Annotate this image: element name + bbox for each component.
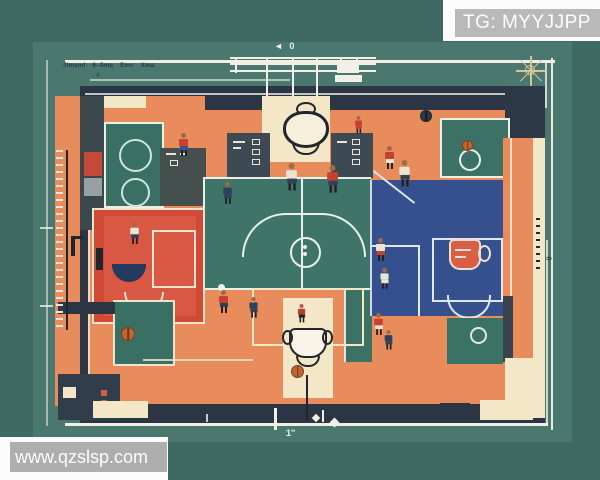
bottom-ruler-line — [65, 423, 548, 426]
player-center-red — [327, 165, 338, 193]
left-column-gray-block — [84, 178, 102, 196]
player-topleft — [179, 133, 188, 156]
player-leg — [401, 180, 403, 187]
player-head — [386, 330, 390, 334]
blue-court-left-line — [370, 180, 372, 316]
panel-left-box-2 — [252, 149, 260, 155]
basket-mug-dash-1 — [455, 249, 471, 251]
player-jersey — [219, 296, 228, 303]
player-leg — [221, 307, 223, 313]
right-ruler-line — [551, 58, 553, 430]
player-jersey — [179, 139, 188, 146]
player-jersey — [385, 152, 394, 159]
player-legs — [132, 238, 138, 244]
player-legs — [401, 180, 408, 187]
top-navy-band — [205, 86, 545, 110]
ball-seam — [425, 111, 427, 121]
panel-right-box-3 — [352, 159, 360, 165]
watermark-bottom-text: www.qzslsp.com — [15, 447, 148, 467]
measure-vtick-1 — [235, 57, 237, 73]
player-leg — [228, 198, 230, 204]
player-leg — [389, 344, 391, 349]
player-leg — [225, 307, 227, 313]
orange-hline — [143, 359, 253, 361]
player-bottom-center — [298, 304, 305, 322]
player-jersey — [130, 228, 139, 235]
player-leg — [302, 318, 304, 323]
red-key — [152, 230, 196, 288]
player-jersey — [374, 319, 383, 326]
right-black-ticks — [536, 218, 540, 272]
basketball-left — [121, 327, 135, 341]
player-legs — [288, 183, 295, 190]
left-black-ruler — [66, 150, 68, 330]
panel-left-dash-2 — [233, 147, 241, 149]
player-leg — [293, 183, 295, 190]
player-legs — [329, 185, 336, 192]
measure-line-1 — [230, 57, 376, 59]
player-leg — [382, 255, 384, 261]
player-leg — [359, 129, 361, 134]
bottom-tick-long — [274, 408, 277, 430]
side-dimension-label: 8 — [544, 257, 551, 261]
annotation-underline — [90, 79, 290, 81]
player-head — [251, 297, 256, 302]
player-legs — [299, 318, 304, 323]
left-black-bracket-v — [71, 236, 75, 256]
player-leg — [376, 329, 378, 335]
compass-rose-icon — [516, 56, 546, 86]
player-leg — [382, 283, 384, 288]
top-inner-white-line — [85, 93, 543, 95]
player-leg — [329, 185, 331, 192]
player-legs — [181, 150, 187, 156]
slate-zone — [160, 148, 206, 206]
player-leg — [386, 344, 388, 349]
left-ruler-line — [46, 60, 48, 426]
player-head — [387, 146, 392, 151]
panel-left-dash-1 — [233, 141, 245, 143]
player-head — [132, 222, 137, 227]
right-column-cream-line — [510, 138, 512, 298]
slate-panel-left — [227, 133, 270, 178]
player-legs — [378, 255, 384, 261]
hoop-bottom-basket — [289, 328, 327, 358]
player-legs — [387, 163, 393, 169]
player-head — [289, 163, 295, 169]
bottomright-navy-square — [440, 403, 470, 416]
player-head — [225, 182, 230, 187]
left-ruler-tick-1 — [40, 227, 53, 229]
topright-navy-block — [505, 86, 545, 138]
bottom-tick-short — [322, 410, 324, 422]
player-leg — [378, 255, 380, 261]
player-leg — [254, 312, 256, 317]
player-center-white — [286, 163, 297, 191]
player-leg — [132, 238, 134, 244]
hoop-bottom-hook-right — [322, 330, 333, 345]
player-head — [376, 313, 381, 318]
player-top-small — [355, 116, 362, 133]
player-legs — [386, 344, 391, 349]
right-slate-strip — [503, 296, 513, 362]
player-legs — [376, 329, 382, 335]
player-leg — [356, 129, 358, 134]
circles-zone-circle-bottom — [121, 178, 150, 207]
watermark-top-text: TG: MYYJJPP — [463, 12, 591, 33]
bottom-tick-left — [206, 414, 208, 422]
player-head — [221, 290, 226, 295]
watermark-top: TG: MYYJJPP — [455, 9, 600, 37]
player-jersey — [286, 170, 297, 178]
player-legs — [382, 283, 387, 288]
player-leg — [225, 198, 227, 204]
measure-vtick-3 — [292, 57, 294, 97]
player-leg — [135, 238, 137, 244]
blue-court-vline — [418, 246, 420, 316]
player-legs — [251, 312, 256, 317]
watermark-bottom: www.qzslsp.com — [10, 442, 167, 472]
basketball-bottom — [291, 365, 304, 378]
player-blue-top — [376, 238, 385, 261]
panel-right-dash-1 — [337, 141, 347, 143]
hoop-bottom-hook-left — [282, 330, 293, 345]
player-leg — [299, 318, 301, 323]
player-leg — [391, 163, 393, 169]
left-column-red-block — [84, 152, 102, 176]
player-right-jumper — [399, 160, 409, 186]
ball-dark — [420, 110, 432, 122]
player-leg — [185, 150, 187, 156]
blueprint-sub-annotation: 4 — [96, 73, 99, 79]
player-head — [357, 116, 361, 120]
basket-mug — [449, 239, 481, 270]
ball-seam — [127, 328, 129, 340]
player-jersey — [376, 244, 385, 251]
bottom-cream-left — [93, 401, 148, 418]
topright-ball-ring — [459, 149, 481, 171]
player-legs — [221, 307, 227, 313]
bottom-dimension-label: 1'' — [286, 428, 295, 438]
panel-right-box-1 — [352, 139, 360, 145]
player-blue-mid — [380, 268, 388, 289]
measure-vtick-4 — [316, 57, 318, 97]
player-teal-column-red — [374, 313, 383, 335]
panel-right-box-2 — [352, 149, 360, 155]
center-dot-1 — [303, 245, 307, 249]
player-jersey — [327, 172, 338, 180]
top-zero-dimension-label: ◄ 0 — [274, 41, 296, 51]
center-dot-2 — [303, 252, 307, 256]
right-teal-circle — [470, 327, 487, 344]
player-teal-column-dark — [385, 330, 393, 350]
slate-zone-dash-1 — [166, 153, 176, 155]
left-tick-column — [56, 150, 63, 330]
player-leg — [251, 312, 253, 317]
player-leg — [406, 180, 408, 187]
left-ruler-tick-2 — [40, 305, 53, 307]
player-legs — [356, 129, 361, 134]
hoop-bottom-stem — [306, 375, 308, 421]
player-head — [382, 268, 387, 273]
panel-left-box-3 — [252, 159, 260, 165]
player-leg — [181, 150, 183, 156]
player-right-red — [385, 146, 394, 169]
player-leg — [385, 283, 387, 288]
bottomleft-cream-square — [63, 387, 76, 398]
player-head — [181, 133, 186, 138]
player-leg — [288, 183, 290, 190]
measure-box-2 — [335, 75, 362, 82]
player-leg — [334, 185, 336, 192]
bottomleft-red-dot-1 — [101, 390, 107, 396]
right-ruler-line-3 — [546, 240, 548, 426]
player-jersey — [399, 167, 409, 175]
slate-zone-box — [170, 160, 178, 166]
compass-ring — [525, 65, 535, 75]
basket-mug-handle — [478, 245, 491, 262]
player-redcourt — [130, 222, 139, 244]
blueprint-annotation-text: Jlmaml 6–Sma Emc Xma — [63, 63, 154, 69]
player-upper-mid — [223, 182, 232, 204]
player-jersey — [223, 188, 232, 195]
left-black-rect — [96, 248, 103, 270]
basket-mug-dash-2 — [455, 256, 466, 258]
player-shooter-left — [219, 290, 228, 313]
player-legs — [225, 198, 231, 204]
measure-vtick-2 — [266, 57, 268, 97]
bottom-cream-right — [480, 400, 533, 420]
player-mid-dark — [249, 297, 257, 318]
measure-box-1 — [337, 65, 359, 73]
poster-basketball-court-illustration: ◄ 0 1'' 8 Jlmaml 6–Sma Emc Xma 4 TG: MYY… — [0, 0, 600, 480]
player-head — [300, 304, 304, 308]
ball-seam — [467, 141, 469, 150]
panel-left-box-1 — [252, 139, 260, 145]
left-black-bracket-h — [71, 236, 83, 239]
basketball-topright — [462, 140, 473, 151]
player-leg — [387, 163, 389, 169]
ball-seam — [297, 366, 299, 377]
player-leg — [379, 329, 381, 335]
player-head — [330, 165, 336, 171]
player-head — [378, 238, 383, 243]
player-head — [402, 160, 408, 166]
circles-zone-circle-top — [119, 139, 152, 172]
